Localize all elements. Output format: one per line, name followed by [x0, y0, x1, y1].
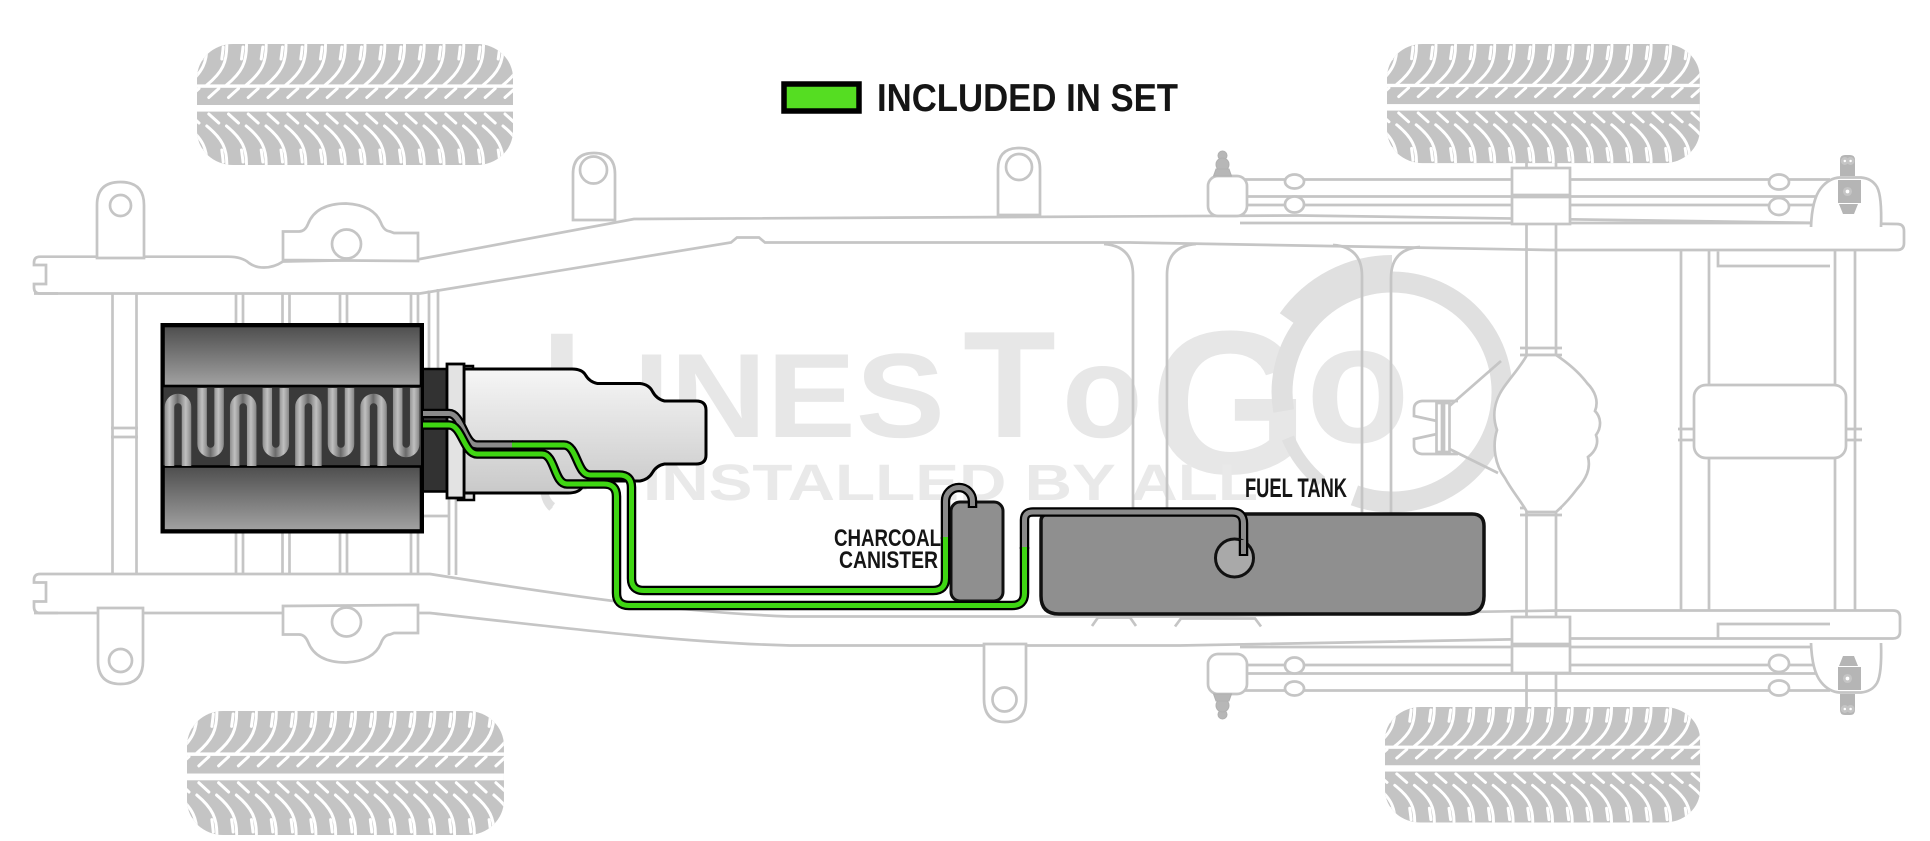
- svg-text:FUEL TANK: FUEL TANK: [1245, 473, 1347, 503]
- svg-text:T: T: [963, 300, 1056, 470]
- svg-text:o: o: [1062, 318, 1143, 465]
- svg-text:CANISTER: CANISTER: [839, 547, 938, 574]
- svg-text:INCLUDED IN SET: INCLUDED IN SET: [877, 77, 1178, 120]
